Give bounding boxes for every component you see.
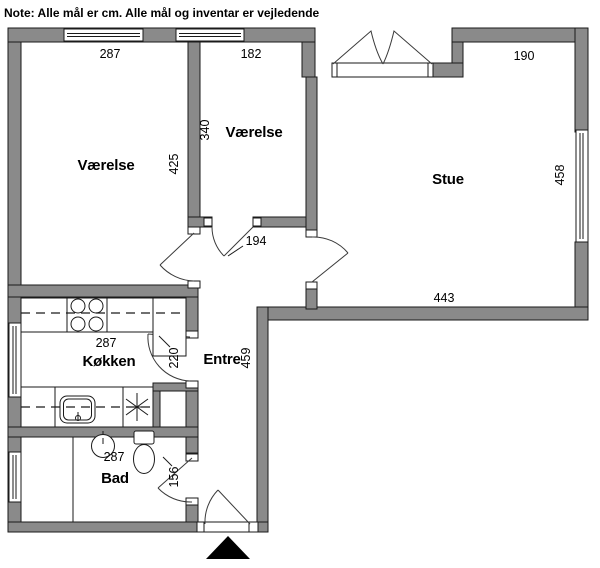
- dim-vaerelse-mid-width: 182: [241, 47, 262, 61]
- dim-entre-depth: 459: [239, 348, 253, 369]
- floorplan-canvas: Note: Alle mål er cm. Alle mål og invent…: [0, 0, 600, 568]
- dim-bad-width: 287: [104, 450, 125, 464]
- label-entre: Entre: [203, 351, 240, 368]
- jamb-stue-bottom: [306, 282, 317, 289]
- wall-entry-right-stub: [433, 63, 463, 77]
- jamb-v1-bottom: [188, 281, 200, 288]
- window-bad: [9, 452, 21, 502]
- wall-corridor-left-lower: [186, 505, 198, 522]
- jamb-stue-top: [306, 230, 317, 237]
- wall-corridor-left-upper: [186, 297, 198, 332]
- label-vaerelse-left: Værelse: [78, 157, 135, 174]
- window-koekken: [9, 323, 21, 397]
- jamb-v2-right: [253, 218, 261, 226]
- dim-koekken-door: 220: [167, 348, 181, 369]
- label-vaerelse-mid: Værelse: [226, 124, 283, 141]
- dim-entre-opening: 194: [246, 234, 267, 248]
- label-stue: Stue: [432, 171, 464, 188]
- kitchen-tall-unit: [153, 298, 186, 356]
- window-stue: [576, 130, 588, 242]
- dim-stue-right: 458: [553, 165, 567, 186]
- wall-entry-step-left: [302, 42, 315, 77]
- window-vaerelse-mid: [176, 29, 244, 41]
- dim-koekken-width: 287: [96, 336, 117, 350]
- dim-stue-bottom: 443: [434, 291, 455, 305]
- wall-entry-step-right: [452, 42, 463, 63]
- wall-entre-right: [257, 307, 268, 532]
- door-balcony-double: [333, 31, 432, 64]
- note-text: Note: Alle mål er cm. Alle mål og invent…: [4, 6, 320, 20]
- wall-bottom-left: [8, 522, 204, 532]
- dim-vaerelse-left-depth: 425: [167, 154, 181, 175]
- dim-vaerelse-mid-depth: 340: [198, 120, 212, 141]
- wall-corridor-left-mid: [186, 388, 198, 453]
- entrance-arrow: [206, 536, 250, 559]
- label-bad: Bad: [101, 470, 129, 487]
- toilet: [134, 431, 155, 474]
- label-koekken: Køkken: [83, 353, 136, 370]
- threshold-balcony-door: [332, 63, 433, 77]
- dim-vaerelse-left-width: 287: [100, 47, 121, 61]
- jamb-v2-left: [204, 218, 212, 226]
- door-stue: [312, 237, 348, 282]
- jamb-v1-top: [188, 227, 200, 234]
- door-front: [205, 490, 250, 524]
- dim-stue-top: 190: [514, 49, 535, 63]
- wall-stue-entre-lower: [306, 287, 317, 309]
- jamb-bad-top: [186, 454, 198, 461]
- jamb-koekken-bottom: [186, 381, 198, 388]
- wall-v1-bottom: [8, 285, 198, 297]
- floorplan: Note: Alle mål er cm. Alle mål og invent…: [0, 0, 600, 568]
- door-vaerelse-left: [160, 233, 194, 281]
- wall-top-right: [452, 28, 588, 42]
- window-vaerelse-left: [64, 29, 143, 41]
- dim-bad-door: 156: [167, 467, 181, 488]
- walls: [8, 28, 588, 532]
- wall-top-left: [8, 28, 315, 42]
- wall-right-upper: [575, 28, 588, 132]
- wall-stue-entre-upper: [306, 77, 317, 232]
